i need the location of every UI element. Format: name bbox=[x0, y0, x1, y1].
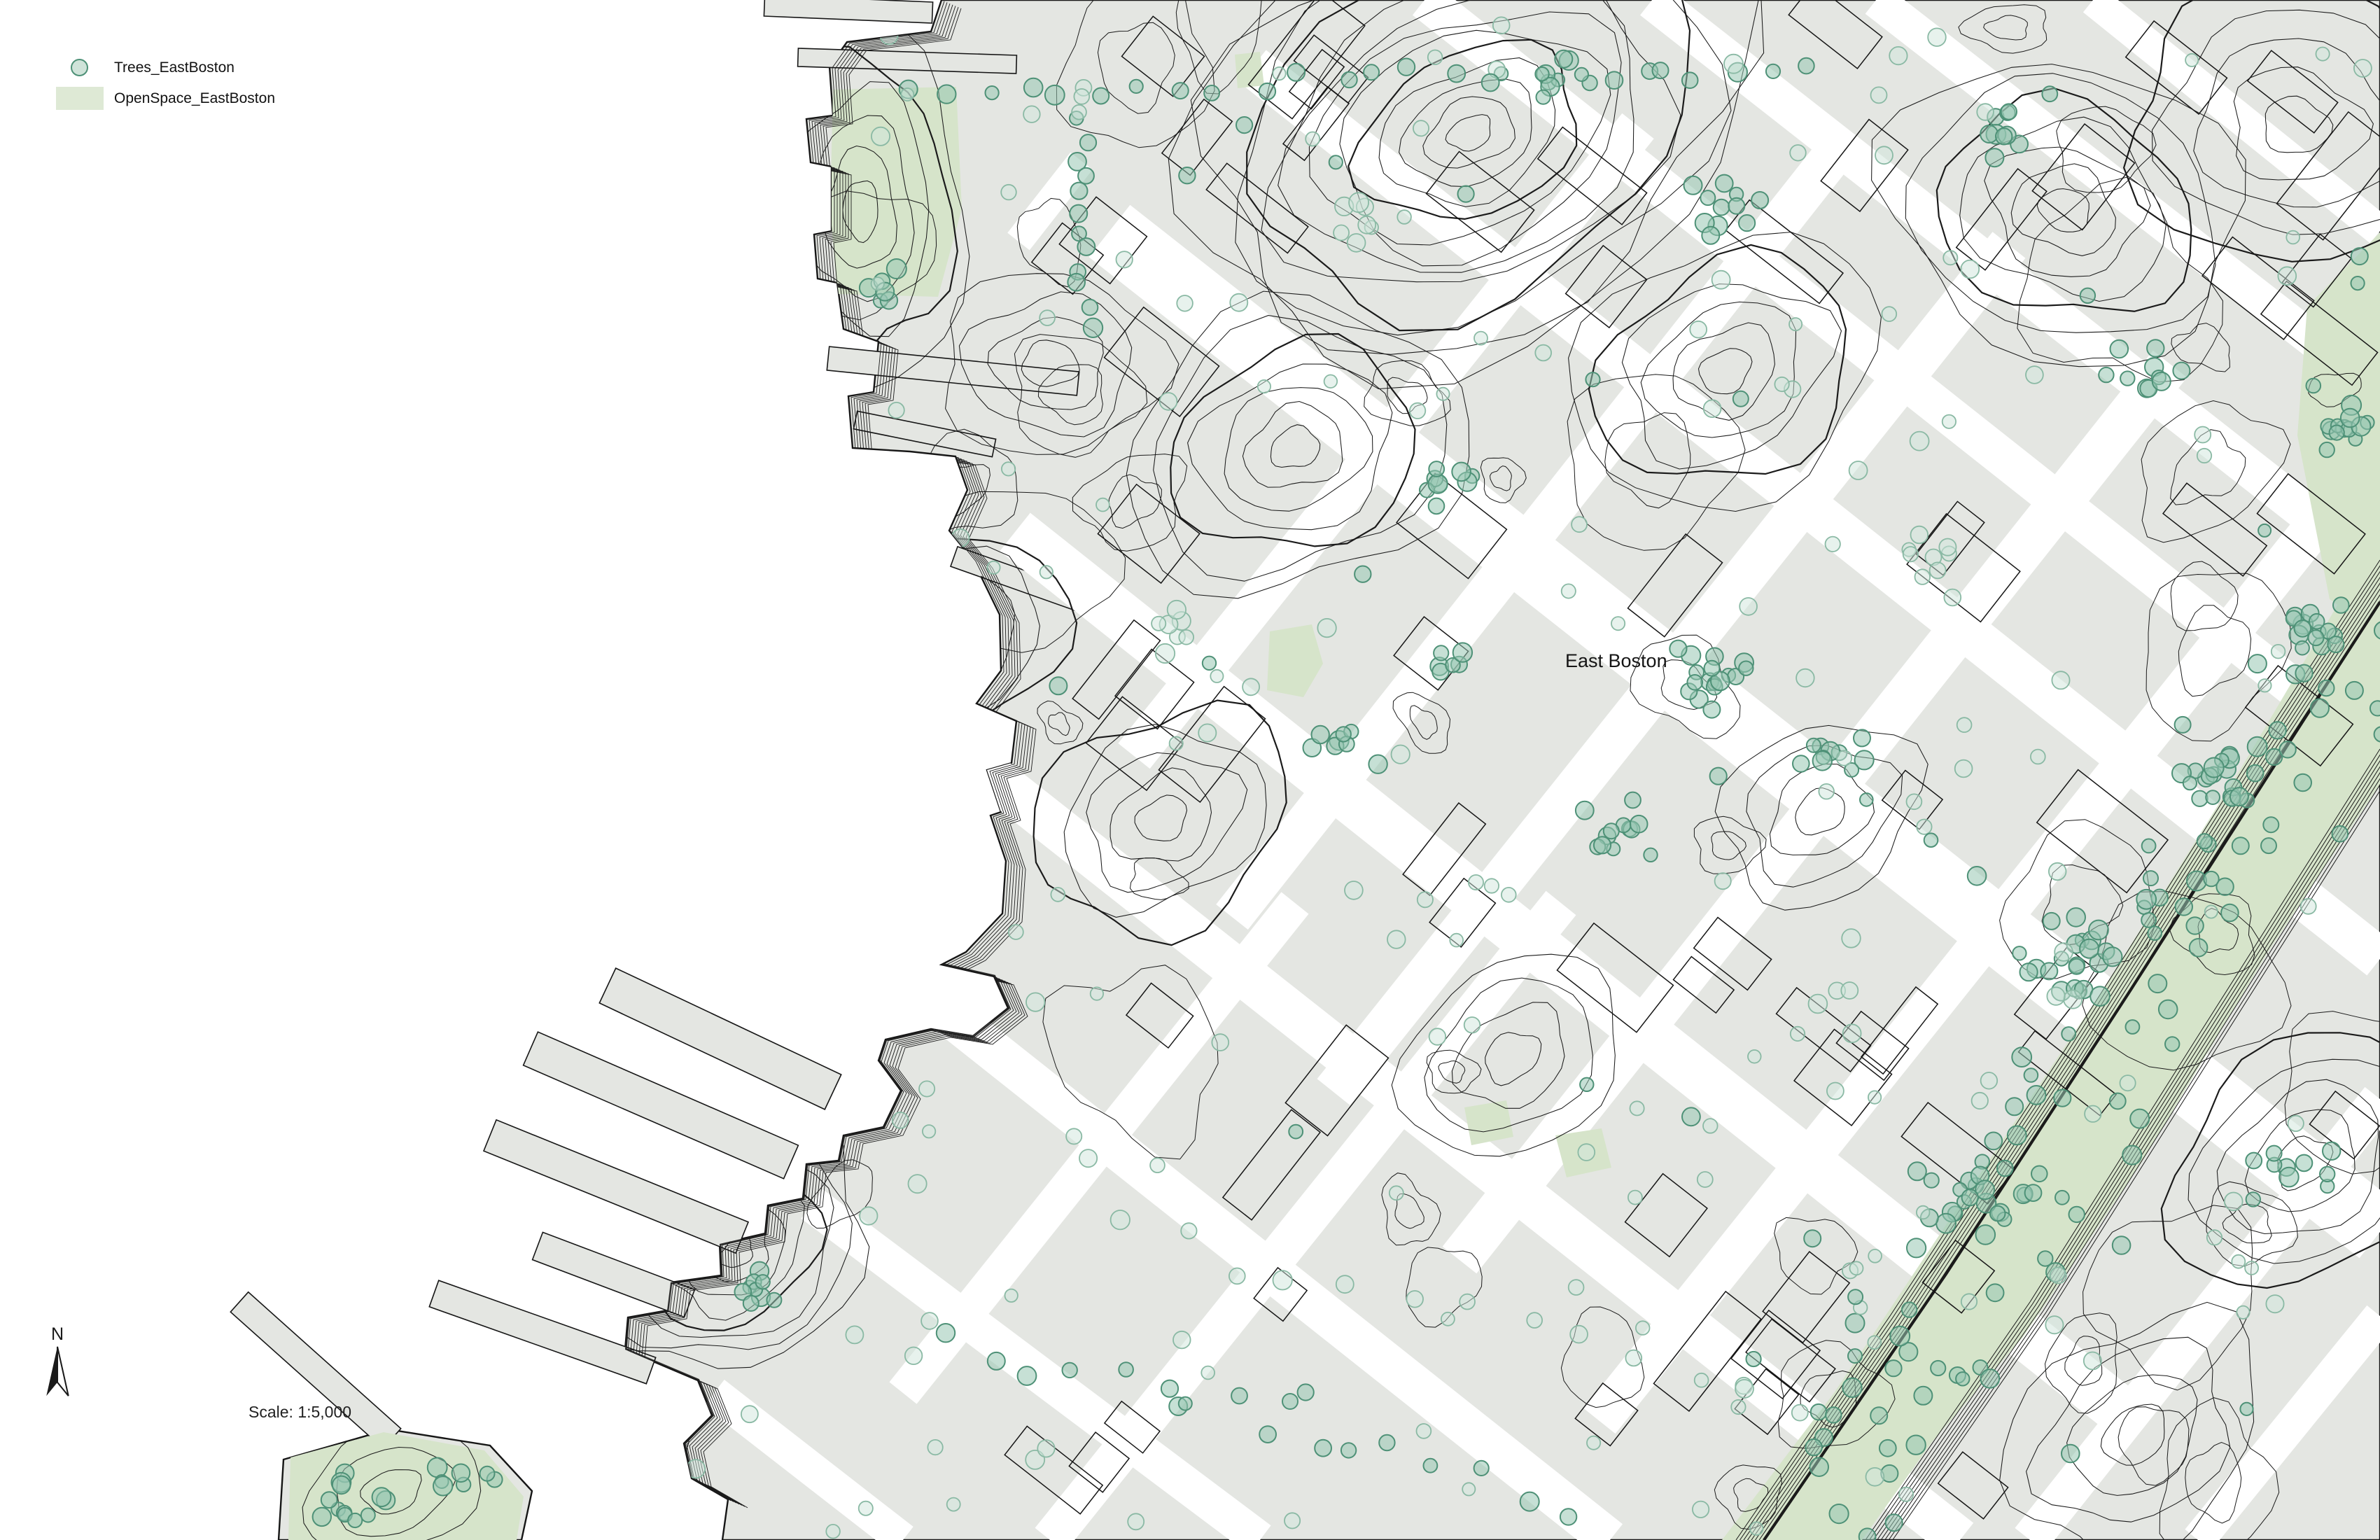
map-label-east-boston: East Boston bbox=[1565, 650, 1667, 672]
map-export: Trees_EastBoston OpenSpace_EastBoston Ea… bbox=[0, 0, 2380, 1540]
openspace-marker-cell bbox=[56, 87, 114, 110]
north-arrow: N bbox=[41, 1326, 74, 1397]
legend-label-openspace: OpenSpace_EastBoston bbox=[114, 90, 275, 107]
tree-point-marker-cell bbox=[56, 59, 114, 76]
north-letter: N bbox=[41, 1326, 74, 1343]
scale-text: Scale: 1:5,000 bbox=[248, 1403, 351, 1422]
legend-item-openspace: OpenSpace_EastBoston bbox=[56, 87, 275, 110]
legend-item-trees: Trees_EastBoston bbox=[56, 59, 275, 76]
openspace-swatch-icon bbox=[56, 87, 104, 110]
tree-point-icon bbox=[71, 59, 88, 76]
legend: Trees_EastBoston OpenSpace_EastBoston bbox=[56, 59, 275, 110]
map-canvas[interactable] bbox=[0, 0, 2380, 1540]
north-arrow-icon bbox=[44, 1345, 71, 1397]
legend-label-trees: Trees_EastBoston bbox=[114, 59, 234, 76]
